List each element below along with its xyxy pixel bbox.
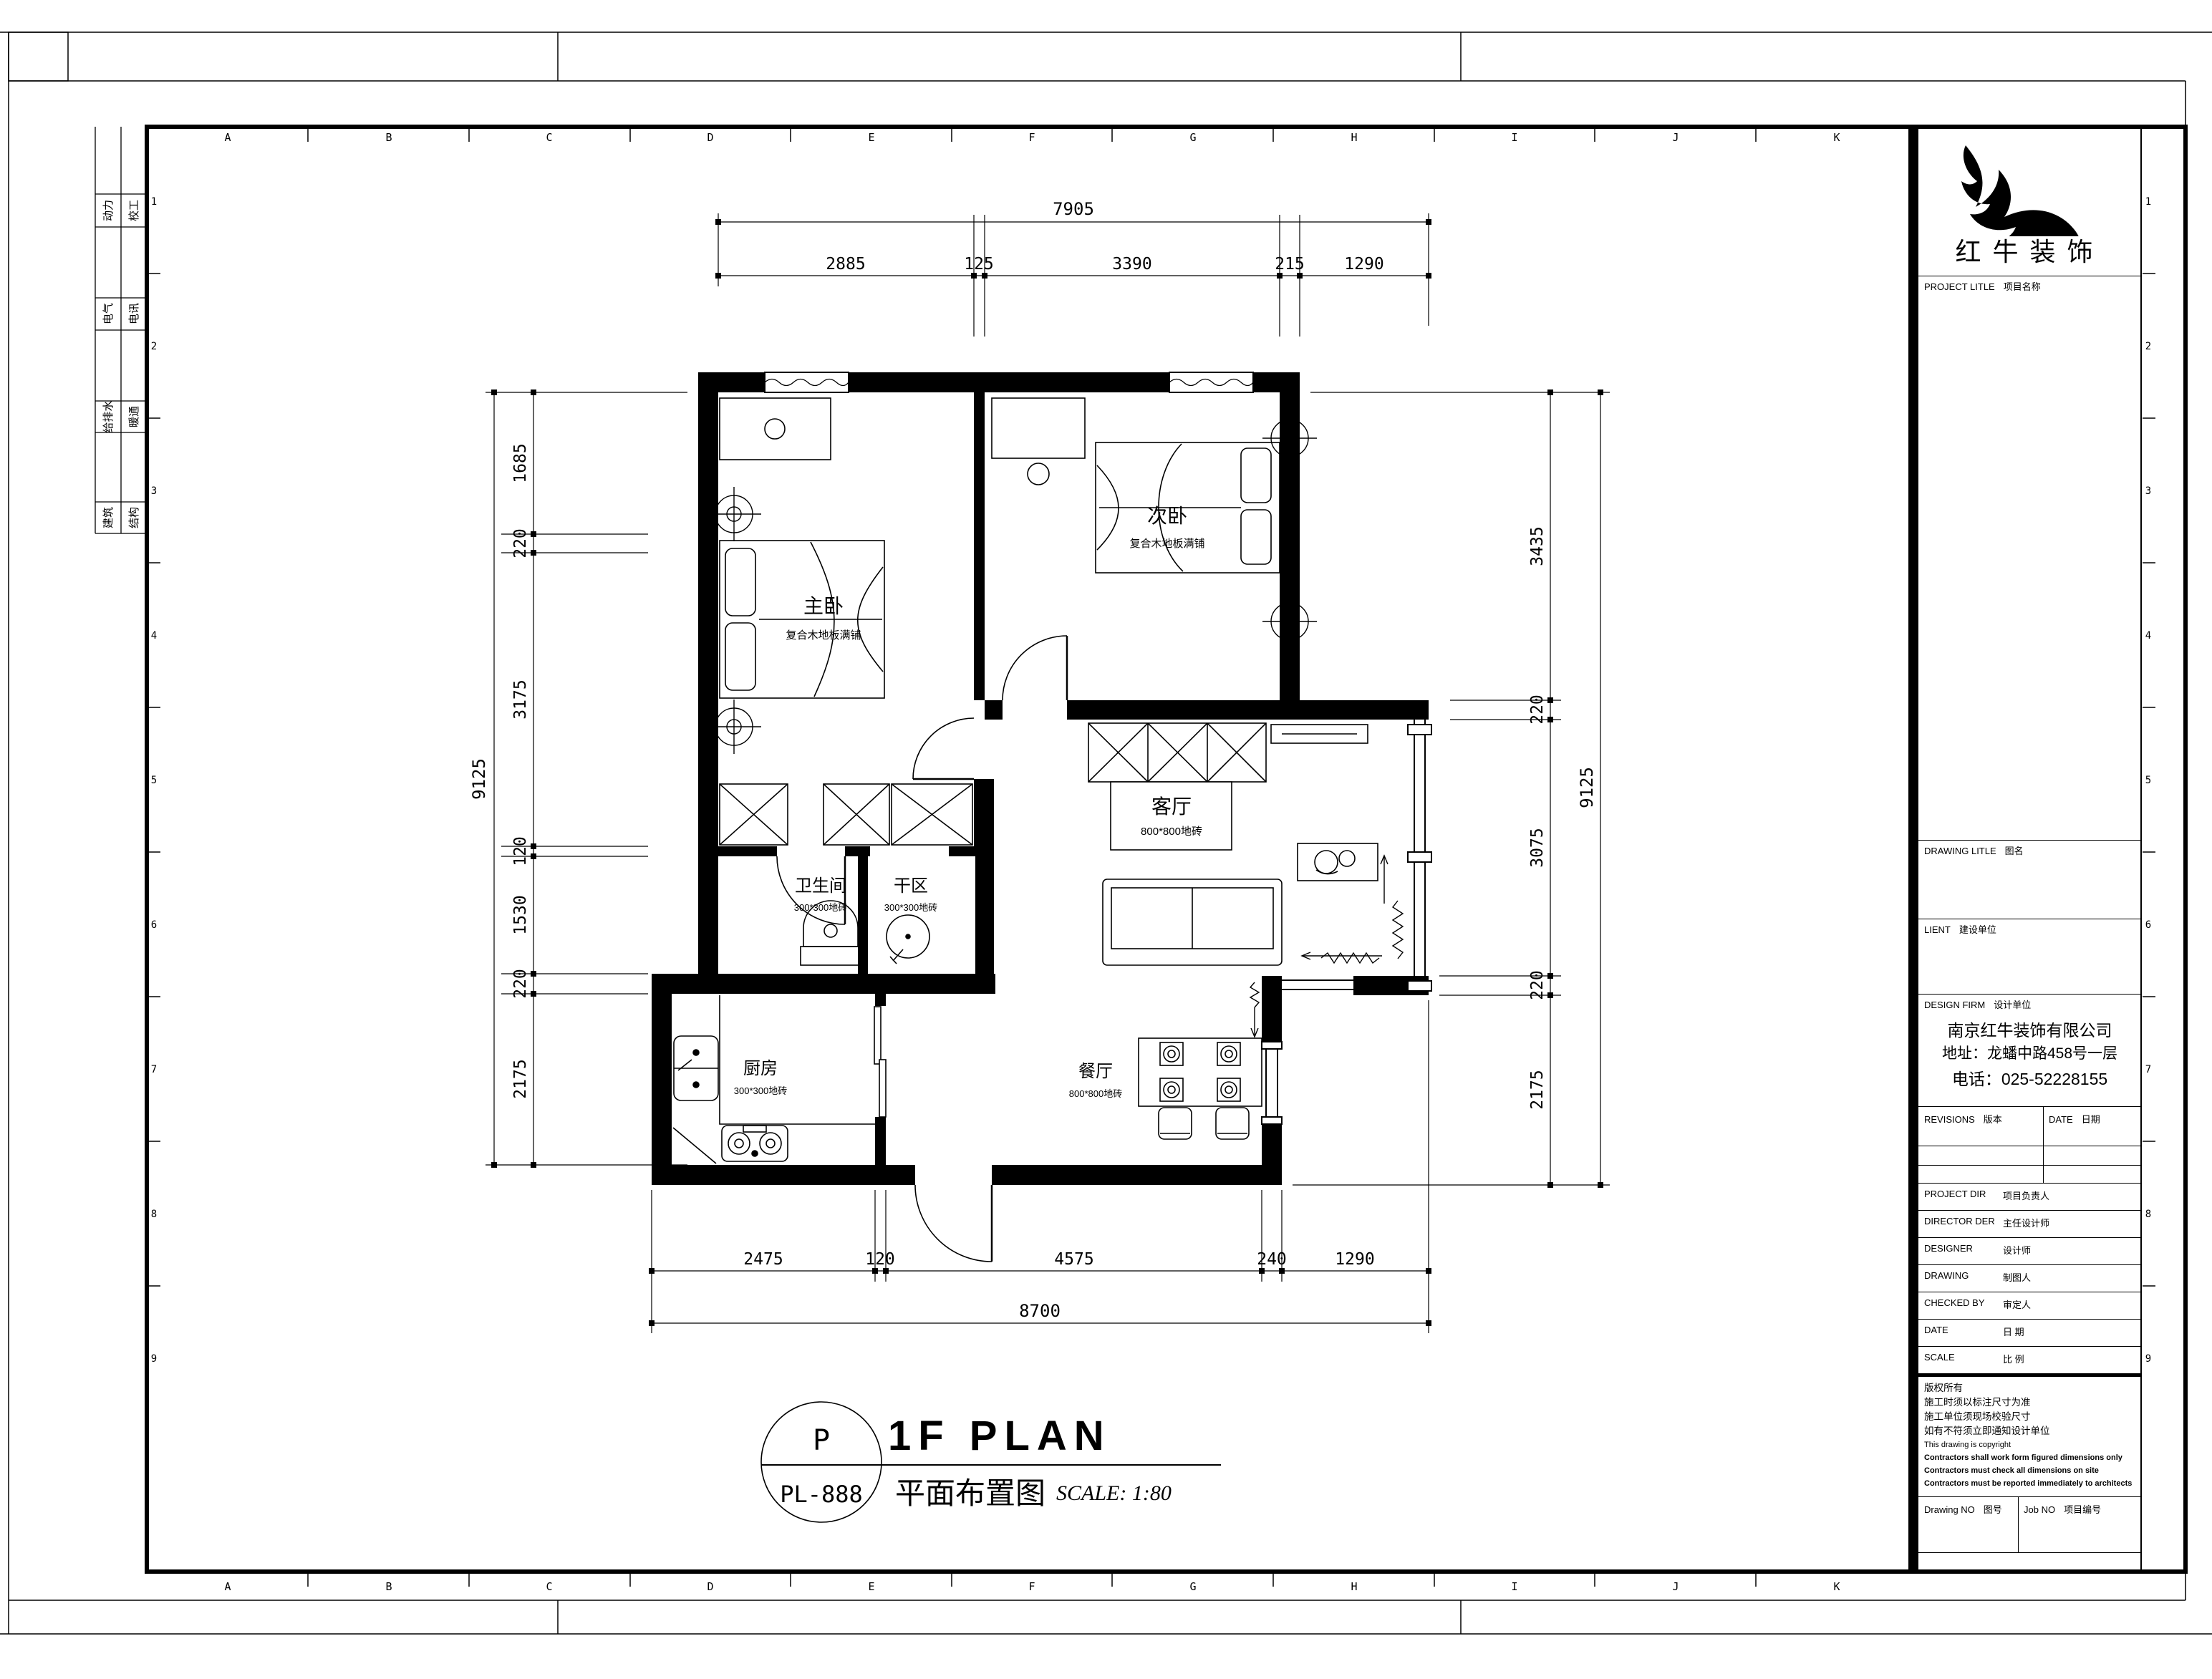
row-numbers-left: 1 2 3 4 5 6 7 8 9 (151, 196, 157, 1365)
stamp-electrical: 电气 (102, 303, 115, 324)
tb-line (1918, 1146, 2141, 1146)
title-block: 红牛装饰 PROJECT LITLE项目名称 DRAWING LITLE图名 L… (1918, 127, 2141, 1572)
staff-en: SCALE (1924, 1352, 1955, 1363)
staff-cn: 制图人 (2003, 1270, 2031, 1284)
client-label: LIENT建设单位 (1924, 922, 1996, 936)
dim-top-seg: 3390 (1112, 255, 1151, 274)
dresser-master (720, 398, 831, 460)
row-number: 1 (2145, 196, 2151, 208)
tb-line (1918, 1346, 2141, 1347)
row-number: 9 (2145, 1353, 2151, 1365)
firm-address: 地址：龙蟠中路458号一层 (1918, 1042, 2141, 1063)
note-line: Contractors must check all dimensions on… (1924, 1464, 2135, 1477)
row-number: 6 (2145, 919, 2151, 931)
stamp-hvac: 暖通 (128, 406, 140, 427)
window-master-top (765, 372, 849, 392)
staff-cn: 设计师 (2003, 1243, 2031, 1257)
grid-letter: I (1511, 131, 1517, 144)
tb-line (1918, 1210, 2141, 1211)
grid-letter: K (1833, 1580, 1840, 1593)
grid-letter: A (224, 1580, 231, 1593)
date-col-label: DATE日期 (2049, 1112, 2100, 1126)
stamp-architecture: 建筑 (102, 507, 115, 528)
room-second-bedroom: 次卧 复合木地板满铺 (1129, 505, 1204, 550)
tb-line-thick (1918, 1373, 2141, 1377)
washer-cabinet (824, 784, 972, 845)
dim-top-seg: 2885 (826, 255, 865, 274)
grid-letter: G (1189, 131, 1196, 144)
room-finish: 800*800地砖 (1069, 1088, 1122, 1099)
dim-left-seg: 1685 (511, 443, 530, 483)
row-number: 5 (2145, 775, 2151, 786)
dim-bottom-total: 8700 (1019, 1301, 1061, 1321)
room-dry-area: 干区 300*300地砖 (884, 876, 937, 913)
firm-phone: 电话：025-52228155 (1918, 1065, 2141, 1090)
room-living: 客厅 800*800地砖 (1111, 782, 1232, 850)
grid-letter: D (707, 1580, 713, 1593)
staff-cn: 项目负责人 (2003, 1189, 2049, 1202)
row-number: 4 (151, 630, 157, 642)
grid-letter: J (1672, 131, 1679, 144)
dim-top-seg: 215 (1275, 255, 1305, 274)
row-number: 7 (151, 1064, 157, 1075)
grid-letter: B (385, 131, 392, 144)
row-number: 8 (151, 1209, 157, 1220)
grid-letter: G (1189, 1580, 1196, 1593)
company-name: 红牛装饰 (1918, 231, 2141, 268)
staff-cn: 日 期 (2003, 1325, 2024, 1338)
tv-console (1271, 725, 1368, 743)
design-firm-label: DESIGN FIRM设计单位 (1924, 997, 2031, 1011)
row-number: 7 (2145, 1064, 2151, 1075)
client-cn: 建设单位 (1959, 924, 1996, 935)
plan-title-cn: 平面布置图 (895, 1476, 1045, 1510)
plan-tag-letter: P (813, 1424, 830, 1457)
dim-chain-right: 3435 220 3075 220 2175 9125 (1293, 389, 1610, 1188)
job-no-en: Job NO (2024, 1504, 2055, 1515)
dry-area-basin (887, 915, 929, 964)
dim-bottom-seg: 120 (865, 1250, 895, 1269)
dim-bottom-seg: 1290 (1335, 1250, 1374, 1269)
plan-title-scale: SCALE: 1:80 (1056, 1481, 1172, 1505)
plan-title-en: 1F PLAN (888, 1413, 1111, 1459)
stamp-telecom: 电讯 (128, 303, 140, 324)
note-line: Contractors shall work form figured dime… (1924, 1451, 2135, 1464)
dim-right-seg: 220 (1528, 970, 1547, 1000)
row-numbers-right: 1 2 3 4 5 6 7 8 9 (2145, 196, 2151, 1365)
dim-right-seg: 2175 (1528, 1070, 1547, 1109)
tb-line (1918, 840, 2141, 841)
design-firm-cn: 设计单位 (1994, 1000, 2031, 1010)
row-number: 1 (151, 196, 157, 208)
room-name: 次卧 (1147, 505, 1187, 527)
row-number: 2 (151, 341, 157, 352)
staff-en: CHECKED BY (1924, 1297, 1985, 1308)
grid-letter: C (546, 1580, 552, 1593)
dim-bottom-seg: 4575 (1054, 1250, 1093, 1269)
note-line: 施工时须以标注尺寸为准 (1924, 1395, 2135, 1410)
room-finish: 复合木地板满铺 (1129, 537, 1204, 550)
dim-bottom-seg: 240 (1257, 1250, 1287, 1269)
bull-logo-icon (1961, 145, 2082, 236)
row-number: 9 (151, 1353, 157, 1365)
window-second-top (1169, 372, 1253, 392)
sheet-svg: A B C D E F G H I J K A B C D E F G H I … (0, 0, 2212, 1679)
grid-letter: F (1028, 1580, 1035, 1593)
door-master (913, 718, 974, 779)
row-number: 8 (2145, 1209, 2151, 1220)
kitchen-stove (722, 1126, 788, 1161)
grid-letter: F (1028, 131, 1035, 144)
grid-letter: A (224, 131, 231, 144)
room-kitchen: 厨房 300*300地砖 (734, 1059, 787, 1096)
revisions-cn: 版本 (1984, 1114, 2002, 1125)
staff-cn: 审定人 (2003, 1297, 2031, 1311)
tb-line (1918, 1496, 2141, 1497)
room-finish: 复合木地板满铺 (786, 629, 861, 642)
kitchen-sink (674, 1036, 718, 1100)
grid-letter: B (385, 1580, 392, 1593)
plan-windows (765, 372, 1431, 1124)
note-line: Contractors must be reported immediately… (1924, 1477, 2135, 1490)
staff-en: DIRECTOR DER (1924, 1216, 1995, 1226)
dining-set (1139, 1038, 1262, 1139)
side-table-plant (1298, 843, 1378, 881)
dim-left-seg: 2175 (511, 1059, 530, 1098)
revisions-en: REVISIONS (1924, 1114, 1975, 1125)
tb-line (1918, 1237, 2141, 1238)
tb-line (1918, 1552, 2141, 1553)
row-number: 3 (151, 485, 157, 497)
bed-second (1096, 442, 1280, 573)
sofa (1103, 879, 1282, 965)
project-title-label: PROJECT LITLE项目名称 (1924, 279, 2041, 293)
dim-right-seg: 220 (1528, 695, 1547, 725)
grid-letter: J (1672, 1580, 1679, 1593)
tb-line (1918, 919, 2141, 919)
dim-right-seg: 3435 (1528, 526, 1547, 566)
project-title-cn: 项目名称 (2004, 281, 2041, 292)
grid-letter: H (1351, 131, 1357, 144)
room-finish: 300*300地砖 (884, 902, 937, 913)
dim-left-seg: 220 (511, 528, 530, 558)
drawing-no-cn: 图号 (1984, 1504, 2002, 1515)
grid-letters-bottom: A B C D E F G H I J K (224, 1580, 1840, 1593)
drawing-sheet: A B C D E F G H I J K A B C D E F G H I … (0, 0, 2212, 1679)
note-line: This drawing is copyright (1924, 1438, 2135, 1451)
kitchen-counter (673, 995, 875, 1163)
stamp-power: 动力 (102, 200, 115, 221)
row-number: 6 (151, 919, 157, 931)
column-symbol (1262, 594, 1317, 649)
tb-vline (2043, 1106, 2044, 1183)
tb-line (1918, 276, 2141, 276)
date-col-en: DATE (2049, 1114, 2073, 1125)
grid-letter: E (868, 131, 874, 144)
job-no-label: Job NO项目编号 (2024, 1502, 2101, 1516)
room-finish: 800*800地砖 (1141, 826, 1202, 838)
drawing-title-label: DRAWING LITLE图名 (1924, 843, 2024, 857)
staff-cn: 主任设计师 (2003, 1216, 2049, 1229)
tb-line (1918, 1106, 2141, 1107)
door-second (1003, 636, 1067, 700)
door-kitchen-slider (874, 1007, 886, 1117)
dim-top-seg: 1290 (1344, 255, 1383, 274)
tb-line (1918, 1165, 2141, 1166)
company-logo (1918, 132, 2141, 236)
dim-left-seg: 120 (511, 836, 530, 866)
room-name: 客厅 (1151, 795, 1192, 818)
grid-letter: H (1351, 1580, 1357, 1593)
window-bay-right (1408, 720, 1431, 995)
row-number: 2 (2145, 341, 2151, 352)
stamp-check: 校工 (128, 200, 140, 221)
dim-left-seg: 220 (511, 969, 530, 999)
bed-master (720, 541, 884, 698)
grid-letters-top: A B C D E F G H I J K (224, 131, 1840, 144)
plan-title: P PL-888 1F PLAN 平面布置图 SCALE: 1:80 (761, 1402, 1221, 1522)
tb-vline (2018, 1496, 2019, 1552)
dimensions: 7905 2885 125 3390 215 1290 (469, 199, 1610, 1333)
row-number: 5 (151, 775, 157, 786)
tb-line (1918, 1319, 2141, 1320)
note-line: 版权所有 (1924, 1381, 2135, 1395)
drawing-no-label: Drawing NO图号 (1924, 1502, 2002, 1516)
design-firm-en: DESIGN FIRM (1924, 1000, 1985, 1010)
dim-left-seg: 3175 (511, 679, 530, 719)
stamp-plumbing: 给排水 (102, 400, 115, 432)
dim-right-seg: 3075 (1528, 828, 1547, 867)
dim-chain-top: 7905 2885 125 3390 215 1290 (715, 199, 1431, 337)
note-line: 如有不符须立即通知设计单位 (1924, 1424, 2135, 1438)
dim-top-total: 7905 (1053, 199, 1094, 219)
room-finish: 300*300地砖 (734, 1085, 787, 1096)
copyright-notes: 版权所有 施工时须以标注尺寸为准 施工单位须现场校验尺寸 如有不符须立即通知设计… (1924, 1381, 2135, 1490)
shoe-closet-living (1088, 723, 1266, 782)
drawing-title-cn: 图名 (2005, 846, 2024, 856)
tb-line (1918, 1292, 2141, 1292)
room-name: 干区 (894, 876, 928, 896)
room-name: 主卧 (803, 595, 844, 617)
room-finish: 300*300地砖 (794, 902, 847, 913)
project-title-en: PROJECT LITLE (1924, 281, 1995, 292)
plan-tag-number: PL-888 (780, 1481, 863, 1508)
date-col-cn: 日期 (2082, 1114, 2100, 1125)
room-name: 卫生间 (795, 876, 846, 896)
grid-letter: K (1833, 131, 1840, 144)
row-number: 3 (2145, 485, 2151, 497)
tb-line (1918, 1264, 2141, 1265)
room-bath: 卫生间 300*300地砖 (794, 876, 847, 913)
desk-second (992, 398, 1085, 485)
door-entry (915, 1185, 992, 1262)
grid-letter: I (1511, 1580, 1517, 1593)
staff-en: DESIGNER (1924, 1243, 1973, 1254)
dim-bottom-seg: 2475 (743, 1250, 783, 1269)
stamp-structure: 结构 (128, 507, 140, 528)
dim-left-total: 9125 (469, 758, 489, 800)
staff-en: PROJECT DIR (1924, 1189, 1986, 1199)
job-no-cn: 项目编号 (2064, 1504, 2101, 1515)
room-name: 厨房 (743, 1059, 778, 1078)
sheet-trim-lines (0, 32, 2212, 1634)
tb-line (1918, 994, 2141, 995)
window-bay-bottom-slider (1282, 980, 1353, 990)
drawing-no-en: Drawing NO (1924, 1504, 1975, 1515)
dim-left-seg: 1530 (511, 895, 530, 934)
stamp-table: 动力 校工 电气 电讯 给排水 暖通 建筑 结构 (95, 127, 147, 533)
grid-letter: D (707, 131, 713, 144)
firm-name: 南京红牛装饰有限公司 (1918, 1017, 2141, 1041)
room-master-bedroom: 主卧 复合木地板满铺 (786, 595, 861, 642)
note-line: 施工单位须现场校验尺寸 (1924, 1410, 2135, 1424)
row-number: 4 (2145, 630, 2151, 642)
grid-letter: E (868, 1580, 874, 1593)
grid-letter: C (546, 131, 552, 144)
staff-en: DATE (1924, 1325, 1948, 1335)
window-dining-right (1262, 1042, 1282, 1124)
wardrobe-master (720, 784, 788, 845)
titleblock-divider (1908, 127, 1918, 1572)
room-name: 餐厅 (1078, 1062, 1113, 1081)
dim-right-total: 9125 (1577, 767, 1597, 808)
room-dining: 餐厅 800*800地砖 (1069, 1062, 1122, 1099)
staff-cn: 比 例 (2003, 1352, 2024, 1365)
revisions-label: REVISIONS版本 (1924, 1112, 2002, 1126)
dim-top-seg: 125 (964, 255, 994, 274)
staff-en: DRAWING (1924, 1270, 1969, 1281)
tb-line (1918, 1183, 2141, 1184)
drawing-title-en: DRAWING LITLE (1924, 846, 1996, 856)
client-en: LIENT (1924, 924, 1951, 935)
